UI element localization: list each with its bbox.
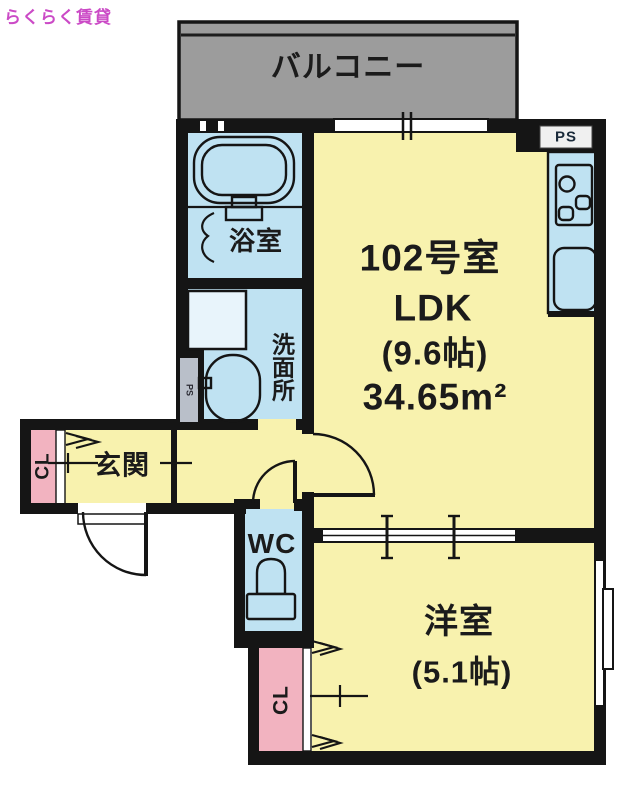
bedroom-closet-label: CL — [271, 685, 292, 715]
wc-label: WC — [248, 530, 297, 558]
entrance-closet-label: CL — [34, 452, 53, 479]
ldk-room-number: 102号室 — [360, 240, 501, 277]
ldk-size-label: (9.6帖) — [382, 337, 489, 370]
western-room-floor — [312, 543, 596, 751]
washroom-doorway-floor — [258, 419, 298, 431]
bathroom-label: 浴室 — [229, 228, 283, 254]
floor-plan-drawing — [0, 0, 636, 800]
washroom-label: 洗面所 — [270, 333, 293, 402]
washing-machine-pan — [188, 291, 246, 349]
balcony-label: バルコニー — [271, 53, 425, 83]
pipe-space-left-label: PS — [185, 384, 194, 396]
entrance-door — [78, 503, 146, 576]
entrance-closet-door-panel — [56, 430, 65, 504]
hall-floor — [171, 430, 302, 509]
ldk-type-label: LDK — [393, 290, 472, 327]
ldk-doorway-floor — [302, 434, 314, 492]
entrance-label: 玄関 — [94, 453, 150, 480]
western-room-size-label: (5.1帖) — [412, 657, 513, 688]
site-logo-text: らくらく賃貸 — [4, 3, 112, 28]
floor-plan-page: らくらく賃貸 — [0, 0, 636, 800]
ldk-area-label: 34.65m² — [363, 379, 508, 416]
pipe-space-kitchen-label: PS — [555, 130, 577, 145]
bedroom-closet-door-panel — [303, 648, 311, 751]
western-room-label: 洋室 — [424, 605, 494, 639]
